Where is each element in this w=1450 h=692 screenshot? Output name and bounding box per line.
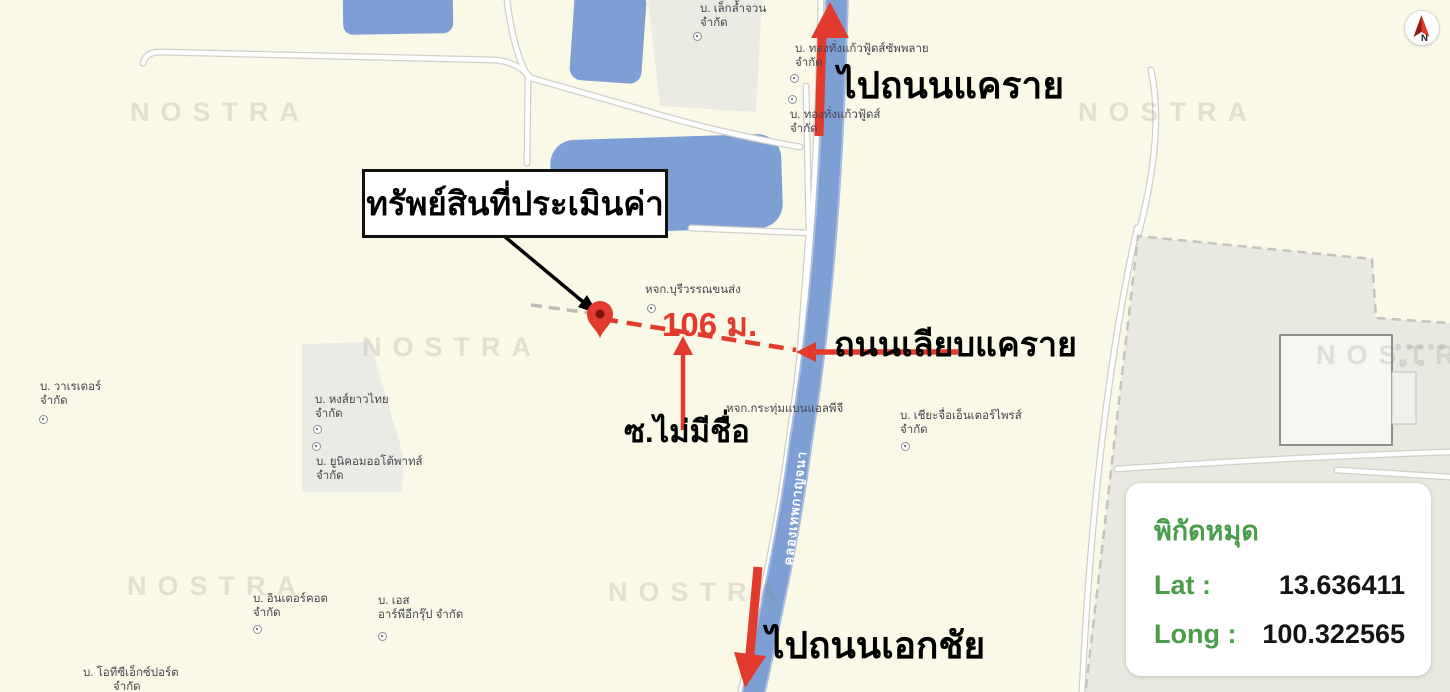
map-canvas[interactable]: NOSTRA NOSTRA NOSTRA NOSTRA NOSTRA NOSTR… [0, 0, 1450, 692]
poi-marker-icon [312, 442, 321, 451]
poi-marker-icon [693, 32, 702, 41]
place-label: บ. ยูนิคอมออโต้พาทส์จำกัด [316, 455, 423, 483]
place-label: บ. เล็กล้ำจวนจำกัด [700, 2, 766, 30]
poi-marker-icon [378, 632, 387, 641]
place-label: บ. เอสอาร์พีอีกรุ๊ป จำกัด [378, 594, 463, 622]
coordinates-card: พิกัดหมุด Lat : 13.636411 Long : 100.322… [1126, 483, 1431, 676]
long-label: Long : [1154, 619, 1236, 650]
unnamed-soi-label: ซ.ไม่มีชื่อ [624, 406, 750, 456]
poi-marker-icon [253, 625, 262, 634]
to-road-south-label: ไปถนนเอกชัย [766, 616, 985, 675]
building-annex [1392, 372, 1416, 424]
distance-label: 106 ม. [662, 298, 757, 351]
place-label: บ. เชียะจื่อเอ็นเตอร์ไพรส์จำกัด [900, 409, 1022, 437]
poi-marker-icon [313, 425, 322, 434]
poi-marker-icon [790, 74, 799, 83]
poi-marker-icon [901, 442, 910, 451]
latitude-row: Lat : 13.636411 [1154, 570, 1405, 601]
road-along-canal-label: ถนนเลียบแคราย [834, 317, 1077, 371]
poi-marker-icon [788, 95, 797, 104]
property-pin-icon[interactable] [587, 301, 613, 338]
place-label: บ. หงส์ยาวไทยจำกัด [315, 393, 389, 421]
compass-icon[interactable]: N [1404, 10, 1440, 46]
lat-value: 13.636411 [1279, 570, 1405, 601]
callout-arrow [504, 236, 598, 314]
place-label: หจก.บุรีวรรณขนส่ง [645, 283, 741, 297]
longitude-row: Long : 100.322565 [1154, 619, 1405, 650]
appraised-property-callout: ทรัพย์สินที่ประเมินค่า [362, 169, 668, 238]
lat-label: Lat : [1154, 570, 1211, 601]
pond-small-top [343, 0, 454, 35]
pond-mid-top [569, 0, 647, 84]
poi-marker-icon [39, 415, 48, 424]
to-road-north-label: ไปถนนแคราย [838, 56, 1064, 115]
place-label: บ. โอทีซีเอ็กซ์ปอร์ตจำกัด [83, 666, 179, 692]
place-label: บ. อินเตอร์คอดจำกัด [253, 592, 328, 620]
poi-marker-icon [647, 304, 656, 313]
coordinates-card-title: พิกัดหมุด [1154, 509, 1405, 552]
place-label: บ. วาเรเดอร์จำกัด [40, 380, 101, 408]
compass-north-label: N [1421, 33, 1428, 44]
long-value: 100.322565 [1262, 619, 1405, 650]
building-right [1280, 335, 1392, 445]
